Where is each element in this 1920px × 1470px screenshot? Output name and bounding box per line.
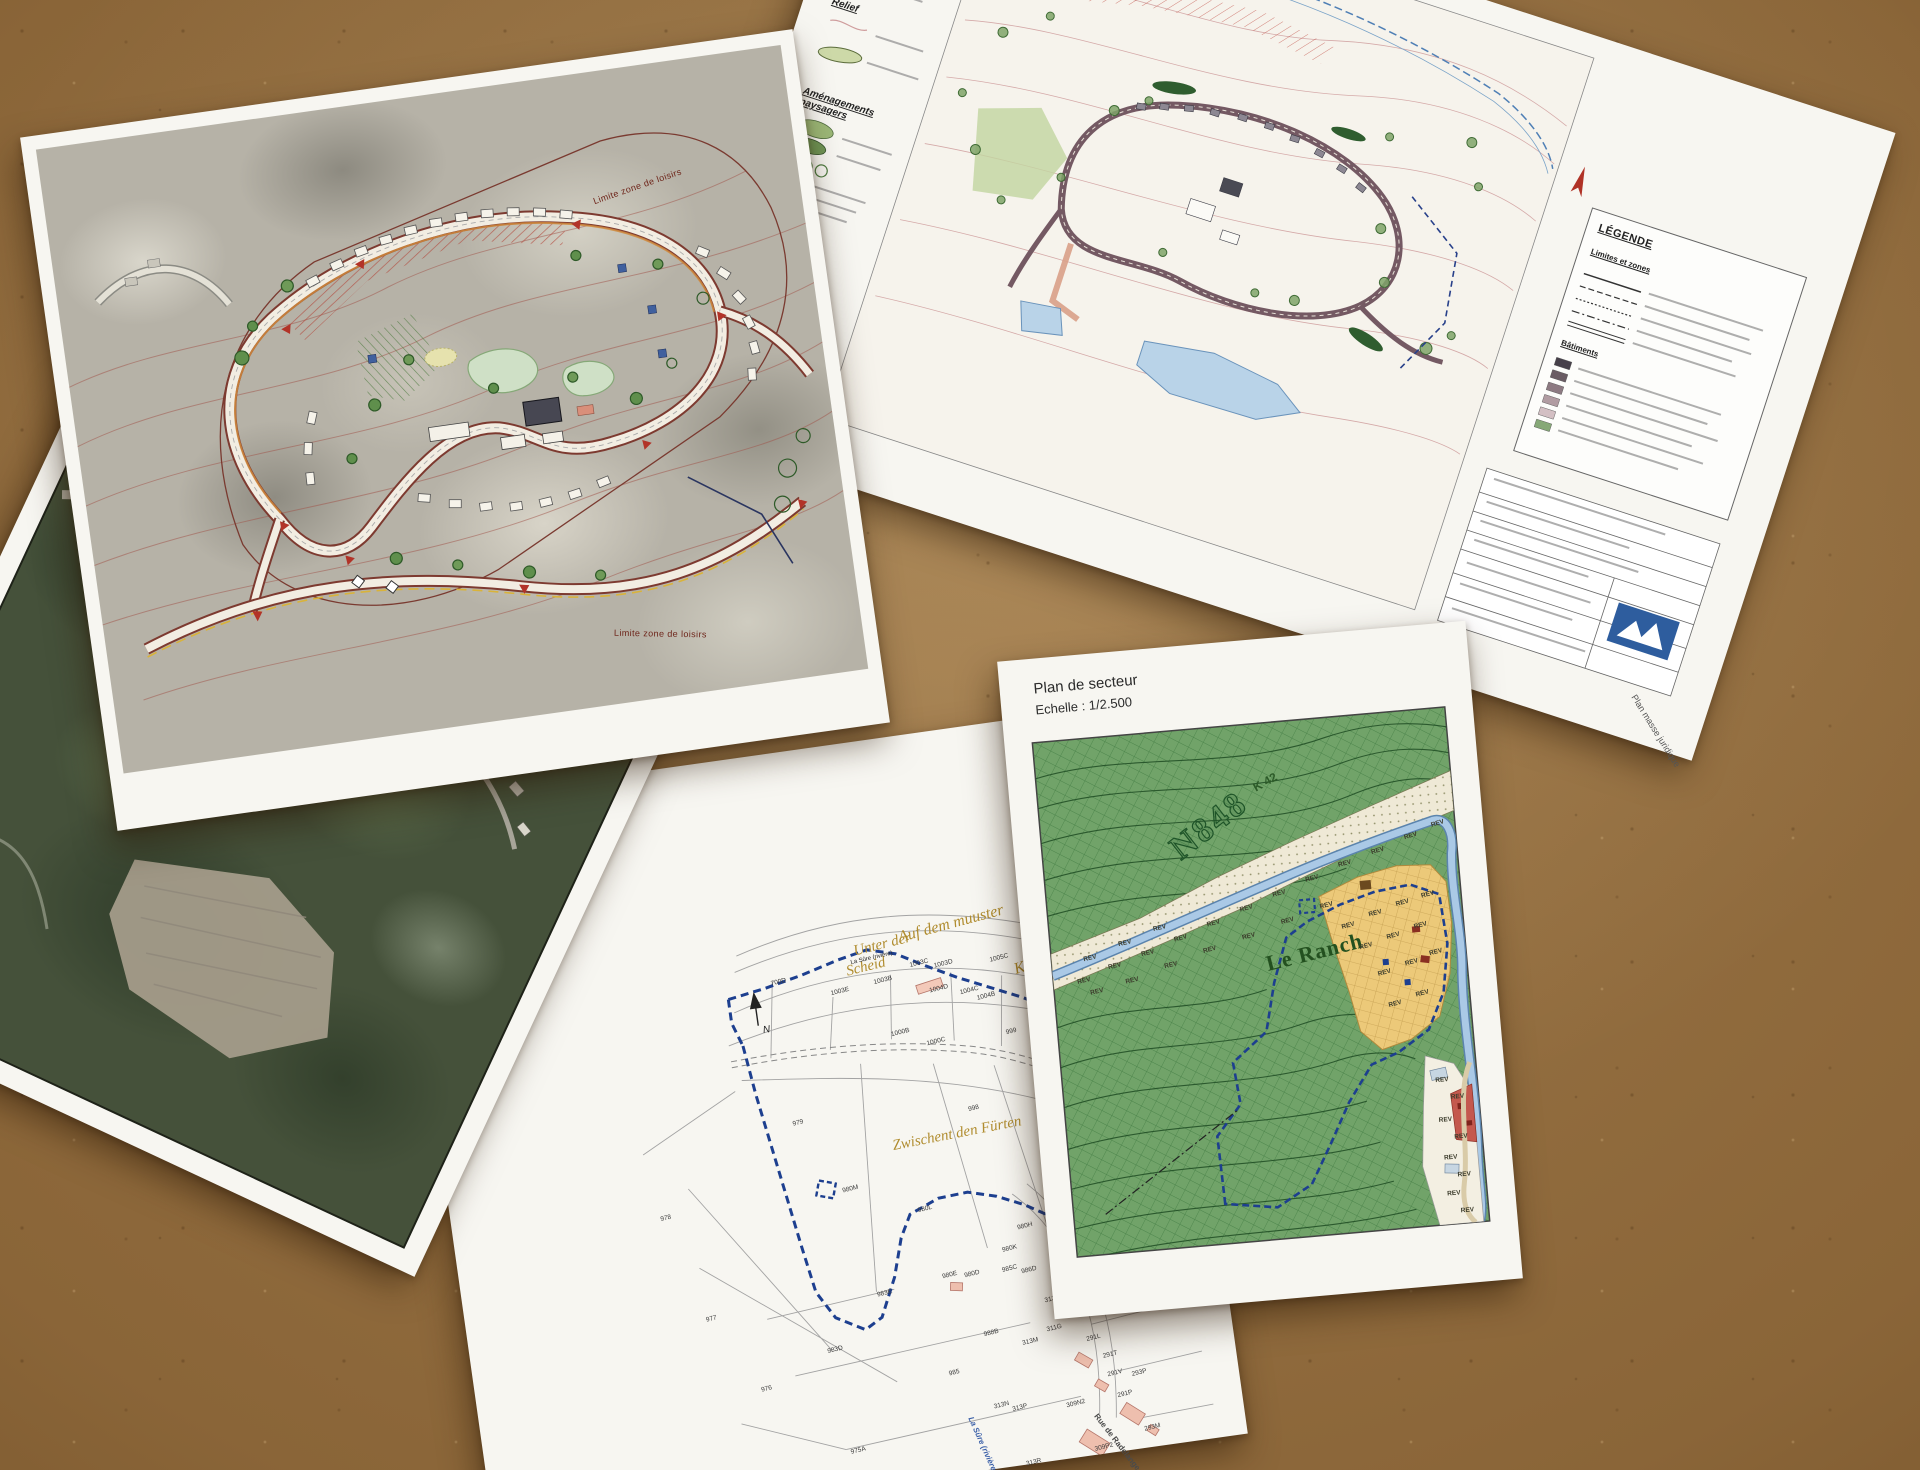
road-name-label: La Sûre (rivière): [966, 1415, 999, 1470]
parcel-number: 309N2: [1066, 1398, 1086, 1409]
parcel-number: 976: [761, 1384, 773, 1393]
zone-code-rev: REV: [1206, 918, 1221, 928]
parcel-number: 983D: [827, 1345, 844, 1356]
parcel-number: 311G: [1046, 1323, 1063, 1334]
parcel-number: 291L: [1086, 1333, 1102, 1343]
upper-left-road: [94, 260, 229, 322]
zone-code-rev: REV: [1239, 903, 1254, 913]
zone-code-rev: REV: [1125, 976, 1140, 986]
parcel-number: 291P: [1117, 1389, 1133, 1399]
boundary-label-bottom: Limite zone de loisirs: [614, 628, 707, 640]
paper-plan-de-secteur: Plan de secteur Echelle : 1/2.500 N848 L…: [997, 621, 1523, 1319]
zone-code-rev: REV: [1430, 818, 1445, 829]
parcel-number: 1003E: [830, 986, 850, 997]
zone-code-rev: REV: [1090, 987, 1105, 997]
rev-labels: REVREVREVREVREVREVREVREVREVREVREVREVREVR…: [997, 621, 1523, 1319]
masterplan-drawing: [36, 45, 868, 774]
zone-code-rev: REV: [1444, 1154, 1458, 1162]
parcel-number: 309P2: [1094, 1441, 1114, 1452]
parcel-number: 291V: [1107, 1368, 1123, 1378]
parcel-number: 293M: [1144, 1422, 1161, 1433]
zone-code-rev: REV: [1173, 933, 1188, 943]
masterplan-aerial-background: [36, 45, 868, 774]
parcel-number: 313N: [993, 1400, 1010, 1411]
zone-code-rev: REV: [1368, 908, 1383, 918]
parcel-number: 985C: [1001, 1263, 1018, 1274]
zone-code-rev: REV: [1319, 900, 1334, 910]
zone-code-rev: REV: [1341, 921, 1356, 931]
parcel-number: 980L: [917, 1204, 933, 1214]
zone-code-rev: REV: [1428, 947, 1443, 957]
parcel-number: 986D: [1021, 1265, 1038, 1276]
parcel-number: 1003B: [873, 975, 893, 986]
zone-code-rev: REV: [1395, 898, 1410, 908]
zone-code-rev: REV: [1460, 1206, 1474, 1214]
zone-code-rev: REV: [1420, 889, 1435, 899]
parcel-number: 998: [968, 1104, 980, 1113]
clearcut-patch: [75, 823, 378, 1092]
zone-code-rev: REV: [1337, 859, 1352, 869]
desk-surface: N 700D1003E1003B1003C1003D1004D1004C1004…: [0, 0, 1920, 1470]
zone-code-rev: REV: [1140, 948, 1155, 958]
zone-code-rev: REV: [1413, 920, 1428, 930]
zone-code-rev: REV: [1415, 988, 1430, 998]
zone-code-rev: REV: [1241, 931, 1256, 941]
north-arrow-red: [1570, 165, 1591, 197]
parcel-number: 975A: [850, 1445, 866, 1455]
legend-relief-icons: [815, 18, 871, 72]
parcel-number: 980K: [1001, 1243, 1017, 1253]
parcel-number: 1003D: [933, 958, 953, 969]
zone-code-rev: REV: [1447, 1189, 1461, 1197]
zone-code-rev: REV: [1377, 968, 1392, 978]
parcel-number: 313R: [1025, 1457, 1042, 1468]
parcel-number: 977: [705, 1314, 717, 1323]
parcel-number: 980M: [842, 1184, 859, 1195]
parcel-number: 985: [948, 1368, 960, 1377]
parcel-number: 979: [792, 1118, 804, 1127]
parcel-number: 293P: [1131, 1367, 1147, 1377]
place-name-label: Zwischent den Fürten: [891, 1113, 1023, 1155]
parcel-number: 980E: [942, 1270, 958, 1280]
zone-code-rev: REV: [1388, 999, 1403, 1009]
zone-code-rev: REV: [1370, 845, 1385, 856]
zone-code-rev: REV: [1386, 931, 1401, 941]
legend-box: [1514, 208, 1807, 520]
parcel-number: 999: [1005, 1027, 1017, 1036]
ponds: [424, 325, 616, 417]
zone-code-rev: REV: [1077, 976, 1092, 986]
zone-code-rev: REV: [1164, 960, 1179, 970]
parcel-number: 313P: [1012, 1402, 1028, 1412]
zone-code-rev: REV: [1083, 953, 1098, 963]
zone-code-rev: REV: [1359, 941, 1374, 951]
parcel-number: 1005C: [989, 952, 1009, 963]
zone-code-rev: REV: [1107, 961, 1122, 971]
parcel-number: 980D: [964, 1269, 981, 1280]
parcel-number: 1004D: [929, 983, 949, 994]
parcel-number: 1003C: [909, 957, 929, 968]
zone-code-rev: REV: [1404, 957, 1419, 967]
road-name-label: Rue de Radelange: [1092, 1412, 1142, 1470]
parcel-number: 988B: [983, 1328, 999, 1338]
parcel-number: 978: [660, 1214, 672, 1223]
paper-masterplan: Limite zone de loisirs Limite zone de lo…: [20, 29, 890, 831]
zone-code-rev: REV: [1454, 1133, 1468, 1141]
parcel-number: 313M: [1022, 1336, 1039, 1347]
zone-code-rev: REV: [1435, 1076, 1449, 1084]
parcel-number: 980H: [1016, 1221, 1033, 1232]
bottom-road: [139, 501, 812, 661]
parcel-number: 1000B: [890, 1027, 910, 1038]
zone-code-rev: REV: [1305, 874, 1320, 884]
place-name-label: Auf dem muuster: [896, 901, 1005, 946]
parcel-number: 700D: [770, 977, 787, 988]
parcel-number: 1004B: [976, 991, 996, 1002]
parcel-number: 1000C: [926, 1036, 946, 1047]
zone-code-rev: REV: [1152, 923, 1167, 933]
zone-code-rev: REV: [1202, 945, 1217, 955]
zone-code-rev: REV: [1118, 938, 1133, 948]
zone-code-rev: REV: [1451, 1093, 1465, 1101]
zone-code-rev: REV: [1280, 916, 1295, 926]
zone-code-rev: REV: [1403, 831, 1418, 842]
zone-code-rev: REV: [1272, 888, 1287, 898]
zone-code-rev: REV: [1457, 1170, 1471, 1178]
parcel-number: 291T: [1102, 1349, 1118, 1359]
parcel-number: 983E: [876, 1288, 892, 1298]
zone-code-rev: REV: [1438, 1116, 1452, 1124]
